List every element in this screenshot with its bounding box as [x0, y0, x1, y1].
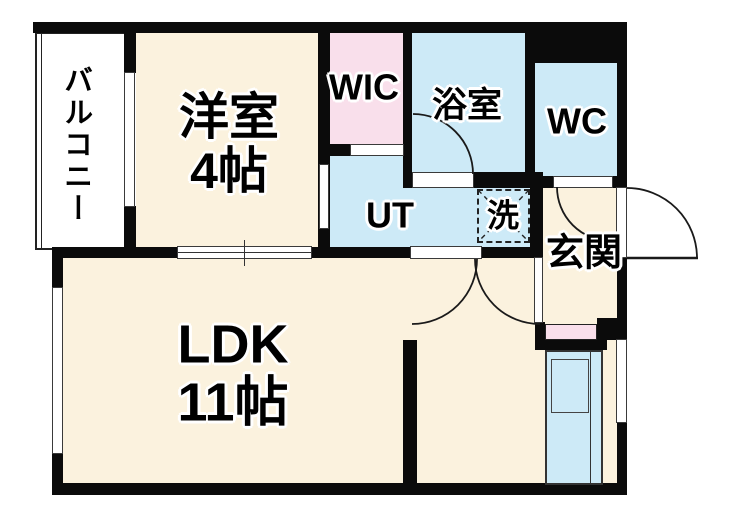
wall-entrance-east-strip	[597, 318, 627, 340]
bedroom-balcony-window	[124, 72, 135, 207]
wall-entrance-west	[530, 172, 543, 257]
kitchen-counter-edge-line	[590, 350, 591, 485]
ldk-name: LDK	[177, 316, 288, 374]
bedroom-name: 洋室	[179, 90, 279, 144]
wall-entrance-south	[535, 340, 597, 350]
wall-bath-west	[403, 33, 412, 188]
wall-bottom	[52, 483, 627, 495]
sliding-door-center-tick	[244, 240, 245, 266]
wall-wic-south-stub	[330, 144, 352, 156]
utility-label: UT	[366, 197, 414, 236]
toilet-label: WC	[547, 103, 607, 142]
ut-door-opening	[410, 246, 482, 259]
wall-ldk-west-top	[52, 252, 63, 288]
wall-bedroom-west-top	[124, 33, 136, 73]
kitchen-sink	[551, 359, 589, 413]
wic-label: WIC	[329, 69, 399, 108]
kitchen-counter	[545, 350, 603, 485]
bathroom-label: 浴室	[432, 87, 502, 125]
wall-bedroom-west-bottom	[124, 206, 136, 250]
bedroom-east-door-leaf	[319, 164, 329, 229]
balcony-railing-line	[41, 33, 42, 248]
ldk-label: LDK 11帖	[177, 316, 288, 433]
wall-wc-top-block	[525, 22, 627, 63]
wall-ldk-north	[52, 247, 177, 258]
wic-opening	[350, 144, 404, 156]
ldk-west-window	[52, 287, 63, 454]
wall-bath-wc-divider	[525, 33, 535, 188]
bedroom-size: 4帖	[179, 144, 279, 198]
wall-ut-south-left	[312, 247, 410, 258]
wc-door-opening	[553, 176, 613, 188]
wall-bath-south	[473, 172, 530, 188]
bathroom-door-opening	[412, 172, 474, 188]
entrance-label: 玄関	[546, 233, 622, 274]
entrance-step-cabinet	[545, 324, 597, 340]
front-door-arc	[627, 188, 697, 258]
wall-ldk-kitchen-divider	[403, 340, 417, 485]
hall-door-leaf	[534, 257, 543, 323]
laundry-label: 洗	[487, 199, 519, 234]
floorplan: バルコニー 洋室 4帖 WIC 浴室 WC UT 洗 玄関 LDK 11帖	[0, 0, 733, 518]
wall-east-upper	[617, 63, 627, 188]
bedroom-label: 洋室 4帖	[179, 90, 279, 198]
kitchen-east-window	[616, 339, 627, 423]
balcony-label: バルコニー	[59, 65, 90, 225]
ldk-size: 11帖	[177, 374, 288, 432]
